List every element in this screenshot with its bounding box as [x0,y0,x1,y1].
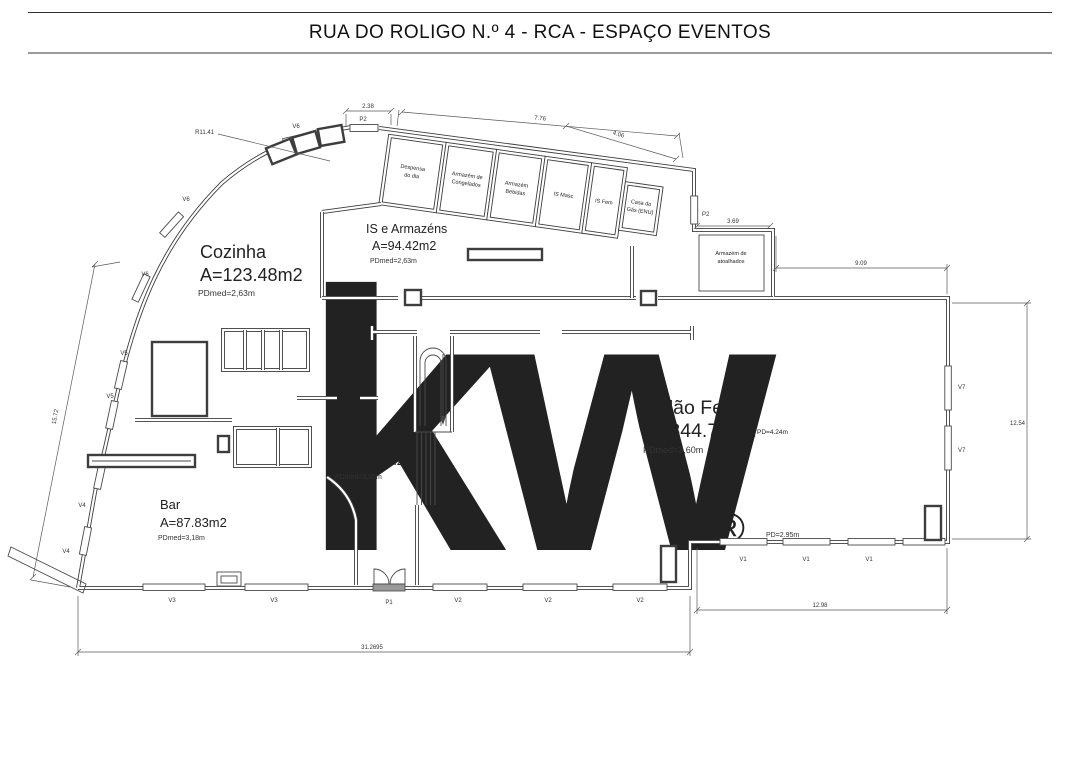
dim-15-72-value: 15.72 [52,408,61,425]
window-v7-2 [945,426,952,470]
dimension-2-38: 2.38 [343,104,394,126]
atoalhados-label-1: Armazém de [715,251,746,257]
dim-31-2695-value: 31.2695 [361,645,383,651]
is-masc-label: IS Masc [553,191,574,200]
survey-plus-marker: + [367,347,372,357]
congelados-label-2: Congelados [451,179,481,189]
window-v5-1 [106,401,119,430]
window-v1-1 [720,539,767,546]
kitchen-island [152,342,207,416]
despensa-label-2: do dia [404,172,421,180]
label-v2-3: V2 [636,598,644,604]
salao-pd: PDmed=3,60m [643,445,703,455]
dim-radius-value: R11.41 [195,130,215,136]
is-counter [468,249,542,260]
bar-area: A=87.83m2 [160,515,227,530]
gas-label-2: Gás (ENU) [626,207,654,217]
label-p2-right: P2 [702,212,710,218]
label-v1-1: V1 [739,557,747,563]
window-v5-2 [114,361,127,390]
window-v2-2 [523,584,577,591]
label-v6-1: V6 [141,272,149,278]
corridor-pillar-2 [641,291,656,305]
label-v1-2: V1 [802,557,810,563]
dim-2-38-value: 2.38 [362,104,374,110]
window-v4-1 [79,527,91,556]
bar-small-cabinet [218,436,229,452]
window-v3-2 [245,584,308,591]
label-v5-1: V5 [106,394,114,400]
bebidas-label-2: Bebidas [505,189,526,198]
corridor-pillar-1 [405,290,421,305]
cozinha-pd: PDmed=2,63m [198,288,255,298]
door-p2-top [350,125,378,132]
label-v6-3: V6 [292,124,300,130]
atoalhados-label-2: atoalhados [718,259,745,265]
is-fem-label: IS Fem [595,198,614,206]
label-v4-2: V4 [78,503,86,509]
label-v6-2: V6 [182,197,190,203]
is-armazens-area: A=94.42m2 [372,239,436,253]
dimension-9-09: 9.09 [773,236,950,294]
door-p2-right [691,196,698,224]
rececao-pd: PDmed=3,85m [335,474,382,481]
dim-4-06-value: 4.06 [612,130,626,139]
kitchen-appliance-3 [318,125,345,146]
floor-plan: kw ® [0,0,1080,764]
label-v7-2: V7 [958,448,966,454]
label-v1-3: V1 [865,557,873,563]
rececao-area: A=81.44m2 [337,453,404,468]
label-v5-2: V5 [120,351,128,357]
window-v7-1 [945,366,952,410]
salao-pd-bottom: PD=2.95m [766,532,799,539]
is-armazens-name: IS e Armazéns [366,222,447,236]
label-v3-1: V3 [168,598,176,604]
label-v3-2: V3 [270,598,278,604]
salao-area: A=344.77m2 [645,420,756,442]
dim-12-98-value: 12.98 [812,603,828,609]
doormat-inner [221,576,237,583]
wc-cells-walls [223,330,308,370]
label-v2-1: V2 [454,598,462,604]
salao-pillar-left [661,546,676,582]
label-p2-top: P2 [359,117,367,123]
exterior-strip [8,547,86,593]
window-v2-1 [433,584,487,591]
salao-pillar-right [925,506,941,540]
dim-9-09-value: 9.09 [855,261,867,267]
label-v7-1: V7 [958,385,966,391]
dim-12-54-value: 12.54 [1010,421,1026,427]
entrance-mat [373,584,405,591]
label-v2-2: V2 [544,598,552,604]
bar-name: Bar [160,497,181,512]
window-v2-3 [613,584,667,591]
salao-name: Salão Festas [645,397,759,419]
label-v4-1: V4 [62,549,70,555]
dim-7-76-value: 7.76 [534,116,547,123]
window-v1-2 [783,539,830,546]
cozinha-name: Cozinha [200,242,267,262]
service-cells-walls [235,428,310,466]
window-v1-3 [848,539,895,546]
dimension-12-54: 12.54 [952,300,1031,542]
dim-3-69-value: 3.69 [727,219,739,225]
label-p1: P1 [385,600,393,606]
bar-pd: PDmed=3,18m [158,535,205,542]
is-armazens-pd: PDmed=2,63m [370,258,417,265]
window-v3-1 [143,584,205,591]
kitchen-appliance-2 [292,131,320,154]
rececao-name: Receção [335,436,386,451]
cozinha-area: A=123.48m2 [200,265,303,285]
salao-pd-right: PD=4.24m [757,429,788,436]
